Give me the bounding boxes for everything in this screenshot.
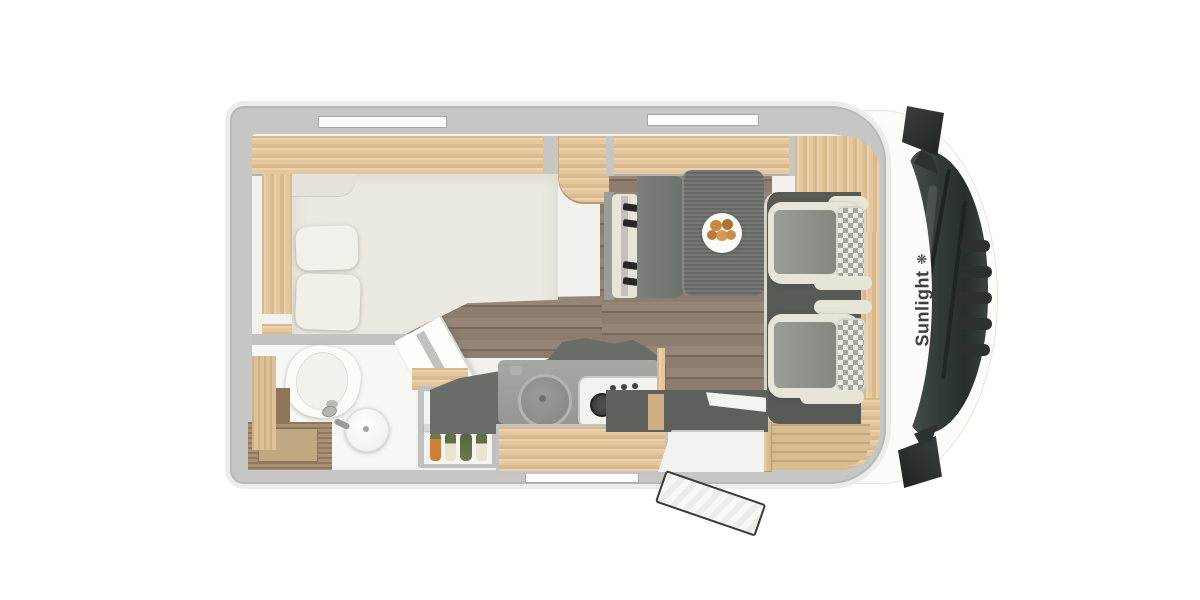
kitchen-faucet-icon: [510, 366, 522, 375]
grille-bar: [958, 266, 992, 278]
window-top-left: [318, 116, 447, 128]
kitchen-sink-drain: [539, 395, 546, 402]
grille-bar: [956, 292, 992, 304]
wardrobe: [556, 176, 604, 302]
motorhome-floorplan: Sunlight ❋: [0, 0, 1200, 600]
driver-headrest: [836, 206, 866, 280]
entry-landing: [658, 430, 764, 472]
food-item: [722, 219, 733, 230]
passenger-seat-panel: [774, 322, 836, 388]
vegetable-greens: [460, 433, 472, 461]
cab-entry-planks: [770, 424, 870, 466]
cabinet-gap: [543, 136, 559, 176]
vegetable-leek: [476, 433, 487, 461]
grille-bar: [960, 344, 990, 356]
pillow: [295, 273, 361, 331]
sunlight-flower-icon: ❋: [915, 254, 931, 265]
vegetable-leek: [445, 433, 456, 461]
passenger-headrest: [836, 318, 866, 392]
dinette-bench-seat: [637, 176, 684, 298]
passenger-armrest: [814, 300, 872, 314]
headboard-shelf: [292, 174, 356, 197]
grille-bar: [960, 240, 990, 252]
driver-seat-panel: [774, 210, 836, 274]
pillow: [295, 225, 358, 271]
passenger-seat-shoulder: [800, 390, 864, 404]
driver-armrest: [814, 276, 872, 290]
brand-logo: Sunlight ❋: [910, 208, 936, 393]
stove-knob: [632, 383, 638, 389]
cabinet-gap: [606, 136, 614, 176]
brand-text: Sunlight: [912, 270, 933, 346]
bedside-cabinet: [262, 174, 292, 314]
window-top-right: [647, 114, 759, 126]
kitchen-sink: [518, 374, 572, 428]
bathroom-partition: [252, 334, 418, 345]
food-item: [726, 230, 736, 240]
grille-bar: [958, 318, 992, 330]
vegetable-carrot: [430, 433, 441, 461]
food-item: [707, 230, 717, 240]
entry-step-wood: [648, 394, 664, 430]
sink-drain: [363, 426, 369, 432]
bathroom-wall-panel: [252, 356, 276, 450]
